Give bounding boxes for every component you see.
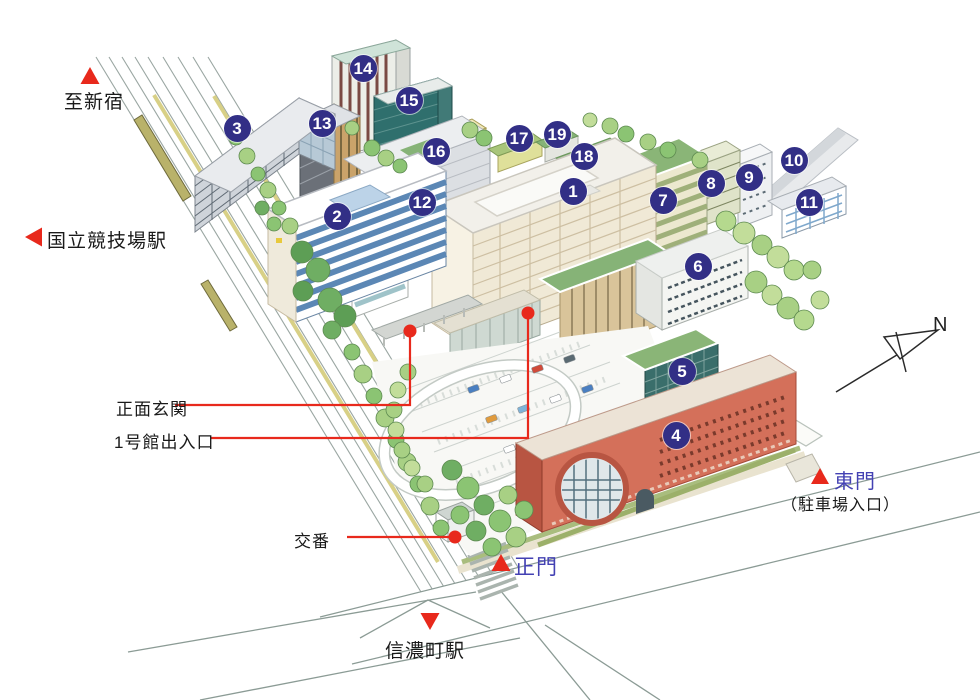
building-marker-5[interactable]: 5 xyxy=(669,358,696,385)
building-marker-13[interactable]: 13 xyxy=(309,110,336,137)
building-marker-4[interactable]: 4 xyxy=(663,422,690,449)
building-marker-7[interactable]: 7 xyxy=(650,187,677,214)
campus-map: 至新宿 国立競技場駅 正面玄関 1号館出入口 交番 正門 東門 （駐車場入口） … xyxy=(0,0,980,700)
building-marker-10[interactable]: 10 xyxy=(781,147,808,174)
building-marker-15[interactable]: 15 xyxy=(396,87,423,114)
building-marker-18[interactable]: 18 xyxy=(571,143,598,170)
east-gate-label: 東門 xyxy=(834,465,876,494)
building-marker-12[interactable]: 12 xyxy=(409,189,436,216)
kokuritsu-station-label: 国立競技場駅 xyxy=(47,226,167,253)
building-marker-2[interactable]: 2 xyxy=(324,203,351,230)
building-marker-1[interactable]: 1 xyxy=(560,178,587,205)
shinanomachi-station-label: 信濃町駅 xyxy=(385,636,465,663)
building-marker-3[interactable]: 3 xyxy=(224,115,251,142)
north-arrow xyxy=(836,330,938,392)
building-marker-16[interactable]: 16 xyxy=(423,138,450,165)
to-shinjuku-triangle xyxy=(81,67,100,84)
map-illustration xyxy=(0,0,980,700)
building-marker-6[interactable]: 6 xyxy=(685,253,712,280)
building-marker-19[interactable]: 19 xyxy=(544,121,571,148)
main-entrance-label: 正面玄関 xyxy=(116,395,188,420)
east-gate-sub-label: （駐車場入口） xyxy=(781,491,900,515)
north-label: N xyxy=(933,314,948,337)
building-marker-17[interactable]: 17 xyxy=(506,125,533,152)
building-marker-8[interactable]: 8 xyxy=(698,170,725,197)
bldg1-entrance-label: 1号館出入口 xyxy=(114,428,214,453)
kokuritsu-station-triangle xyxy=(25,228,42,247)
main-gate-label: 正門 xyxy=(514,551,558,581)
building-marker-14[interactable]: 14 xyxy=(350,55,377,82)
building-marker-11[interactable]: 11 xyxy=(796,189,823,216)
building-marker-9[interactable]: 9 xyxy=(736,164,763,191)
police-box-label: 交番 xyxy=(294,527,330,552)
to-shinjuku-label: 至新宿 xyxy=(64,87,124,114)
